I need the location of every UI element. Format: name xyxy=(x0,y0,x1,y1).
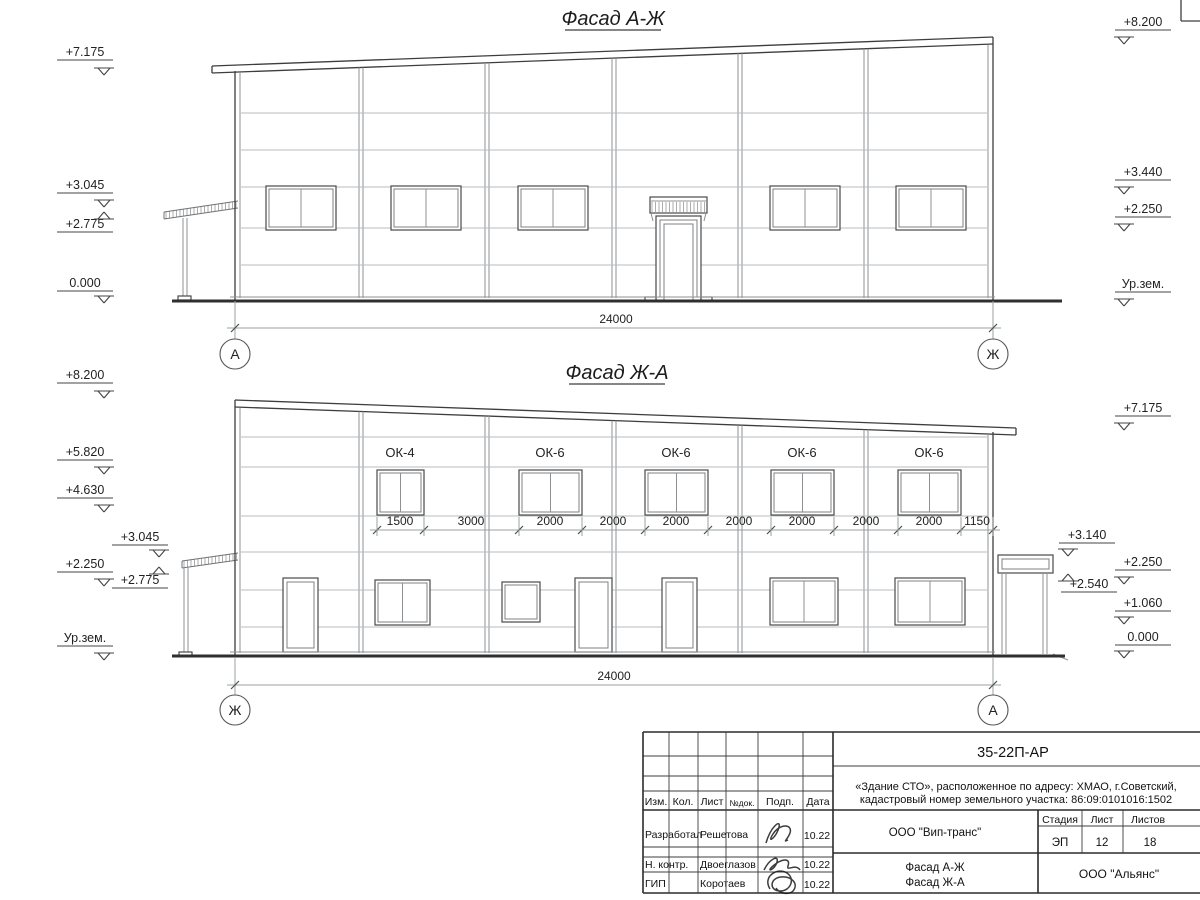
elevation-arrow xyxy=(104,391,110,398)
window-label: ОК-6 xyxy=(787,445,816,460)
tb-date: 10.22 xyxy=(804,879,830,891)
elevation-mark-value: +7.175 xyxy=(66,45,105,59)
door-canopy xyxy=(650,197,707,213)
elevation-arrow xyxy=(104,467,110,474)
elevation-mark-value: +4.630 xyxy=(66,483,105,497)
dimension-value: 2000 xyxy=(537,514,564,528)
tb-doc-number: 35-22П-АР xyxy=(977,745,1049,761)
elevation-arrow xyxy=(1124,617,1130,624)
tb-sheet-title-1: Фасад А-Ж xyxy=(905,862,965,874)
elevation-arrow xyxy=(1118,299,1124,306)
tb-role: ГИП xyxy=(645,878,666,890)
elevation-mark-value: +3.140 xyxy=(1068,528,1107,542)
window-label: ОК-4 xyxy=(385,445,414,460)
elevation-arrow xyxy=(1124,651,1130,658)
roof-line xyxy=(235,400,1016,428)
facade-zh-a: Фасад Ж-А ОК-4ОК-6ОК-6ОК-6ОК-61500300020… xyxy=(57,362,1171,725)
elevation-arrow xyxy=(1118,577,1124,584)
door xyxy=(283,578,318,652)
elevation-arrow xyxy=(98,467,104,474)
window-label: ОК-6 xyxy=(661,445,690,460)
axis-letter: Ж xyxy=(987,346,1000,362)
elevation-arrow xyxy=(153,550,159,557)
elevation-arrow xyxy=(1118,37,1124,44)
tb-sheet-label: Лист xyxy=(1091,814,1114,826)
title-block: Изм. Кол. Лист №док. Подп. Дата Разработ… xyxy=(643,732,1200,893)
drawing-sheet: Фасад А-Ж 24000АЖ +7.175+3.045+2.7750.00… xyxy=(0,0,1200,900)
tb-client: ООО "Вип-транс" xyxy=(889,827,982,839)
elevation-arrow xyxy=(1068,549,1074,556)
dimension-total: 24000 xyxy=(597,669,631,683)
dimension-value: 2000 xyxy=(663,514,690,528)
elevation-mark-value: Ур.зем. xyxy=(64,631,106,645)
tb-stage-value: ЭП xyxy=(1052,837,1069,849)
sheet-frame-corner xyxy=(1181,0,1200,21)
tb-col-kol: Кол. xyxy=(673,796,694,808)
tb-object-line2: кадастровый номер земельного участка: 86… xyxy=(860,794,1172,806)
canopy-bracket xyxy=(704,213,706,221)
elevation-mark-value: Ур.зем. xyxy=(1122,277,1164,291)
elevation-arrow xyxy=(159,550,165,557)
tb-date: 10.22 xyxy=(804,859,830,871)
tb-org: ООО "Альянс" xyxy=(1079,867,1159,881)
elevation-mark-value: +7.175 xyxy=(1124,401,1163,415)
elevation-arrow xyxy=(1118,224,1124,231)
dimension-value: 3000 xyxy=(458,514,485,528)
elevation-arrow xyxy=(104,296,110,303)
tb-role: Разработал xyxy=(645,829,702,841)
elevation-arrow xyxy=(104,505,110,512)
dimension-value: 2000 xyxy=(600,514,627,528)
elevation-mark-value: +8.200 xyxy=(1124,15,1163,29)
axis-letter: Ж xyxy=(229,702,242,718)
elevation-mark-value: +2.250 xyxy=(1124,202,1163,216)
signature xyxy=(768,871,795,893)
window-label: ОК-6 xyxy=(914,445,943,460)
architectural-drawing: Фасад А-Ж 24000АЖ +7.175+3.045+2.7750.00… xyxy=(0,0,1200,900)
elevation-mark-value: +3.045 xyxy=(121,530,160,544)
elevation-mark-value: +2.250 xyxy=(66,557,105,571)
elevation-arrow xyxy=(104,68,110,75)
facade-bottom-title: Фасад Ж-А xyxy=(565,362,668,384)
elevation-arrow xyxy=(1124,299,1130,306)
elevation-arrow xyxy=(104,212,110,219)
elevation-arrow xyxy=(98,505,104,512)
dimension-value: 1150 xyxy=(964,514,990,528)
elevation-arrow xyxy=(159,567,165,574)
tb-name: Решетова xyxy=(700,829,748,841)
door xyxy=(662,578,697,652)
roof-line xyxy=(212,44,993,73)
elevation-arrow xyxy=(1118,423,1124,430)
tb-sheet-value: 12 xyxy=(1096,837,1109,849)
elevation-arrow xyxy=(1124,37,1130,44)
tb-name: Двоеглазов xyxy=(700,859,756,871)
elevation-mark-value: +3.045 xyxy=(66,178,105,192)
roof-line xyxy=(235,407,1016,435)
elevation-mark-value: +5.820 xyxy=(66,445,105,459)
facade-top-geometry xyxy=(164,37,1062,301)
tb-name: Коротаев xyxy=(700,878,746,890)
axis-letter: А xyxy=(988,702,998,718)
elevation-arrow xyxy=(98,653,104,660)
tb-col-podp: Подп. xyxy=(766,796,794,808)
elevation-arrow xyxy=(1062,574,1068,581)
elevation-arrow xyxy=(1124,224,1130,231)
dimension-value: 2000 xyxy=(726,514,753,528)
porch-roof xyxy=(182,560,238,568)
elevation-arrow xyxy=(1118,617,1124,624)
tb-role: Н. контр. xyxy=(645,859,688,871)
elevation-mark-value: +2.250 xyxy=(1124,555,1163,569)
facade-top-title: Фасад А-Ж xyxy=(561,8,666,30)
dimension-value: 2000 xyxy=(789,514,816,528)
elevation-arrow xyxy=(104,579,110,586)
elevation-arrow xyxy=(1118,187,1124,194)
elevation-arrow xyxy=(1062,549,1068,556)
elevation-arrow xyxy=(98,391,104,398)
dimension-value: 2000 xyxy=(853,514,880,528)
signature xyxy=(764,858,800,870)
elevation-arrow xyxy=(98,296,104,303)
dimension-total: 24000 xyxy=(599,312,633,326)
elevation-mark-value: +1.060 xyxy=(1124,596,1163,610)
axis-letter: А xyxy=(230,346,240,362)
elevation-arrow xyxy=(98,579,104,586)
elevation-mark-value: +2.540 xyxy=(1070,577,1109,591)
tb-col-list: Лист xyxy=(701,796,724,808)
tb-col-data: Дата xyxy=(806,796,829,808)
elevation-mark-value: +2.775 xyxy=(121,573,160,587)
tb-sheets-value: 18 xyxy=(1144,837,1157,849)
elevation-mark-value: 0.000 xyxy=(69,276,100,290)
tb-sheets-label: Листов xyxy=(1131,814,1166,826)
elevation-arrow xyxy=(104,200,110,207)
elevation-arrow xyxy=(1124,577,1130,584)
canopy-bracket xyxy=(651,213,653,221)
door xyxy=(575,578,612,652)
elevation-arrow xyxy=(1118,651,1124,658)
facade-a-zh: Фасад А-Ж 24000АЖ +7.175+3.045+2.7750.00… xyxy=(57,8,1171,369)
tb-stage-label: Стадия xyxy=(1042,814,1078,826)
elevation-arrow xyxy=(1124,423,1130,430)
elevation-arrow xyxy=(98,68,104,75)
elevation-arrow xyxy=(98,200,104,207)
dimension-value: 1500 xyxy=(387,514,414,528)
dimension-value: 2000 xyxy=(916,514,943,528)
elevation-mark-value: 0.000 xyxy=(1127,630,1158,644)
signature xyxy=(766,824,790,843)
tb-sheet-title-2: Фасад Ж-А xyxy=(905,877,965,889)
door xyxy=(656,216,701,301)
elevation-arrow xyxy=(1124,187,1130,194)
window-label: ОК-6 xyxy=(535,445,564,460)
porch-board xyxy=(998,555,1053,573)
tb-col-izm: Изм. xyxy=(645,796,668,808)
tb-date: 10.22 xyxy=(804,830,830,842)
tb-object-line1: «Здание СТО», расположенное по адресу: Х… xyxy=(855,781,1176,793)
facade-bottom-dimensions: ОК-4ОК-6ОК-6ОК-6ОК-615003000200020002000… xyxy=(220,445,1008,725)
tb-col-ndok: №док. xyxy=(730,798,755,808)
porch-base xyxy=(178,296,191,300)
elevation-arrow xyxy=(104,653,110,660)
elevation-mark-value: +8.200 xyxy=(66,368,105,382)
facade-top-dimensions: 24000АЖ xyxy=(220,301,1008,369)
elevation-mark-value: +3.440 xyxy=(1124,165,1163,179)
window xyxy=(502,582,540,622)
roof-line xyxy=(212,37,993,66)
